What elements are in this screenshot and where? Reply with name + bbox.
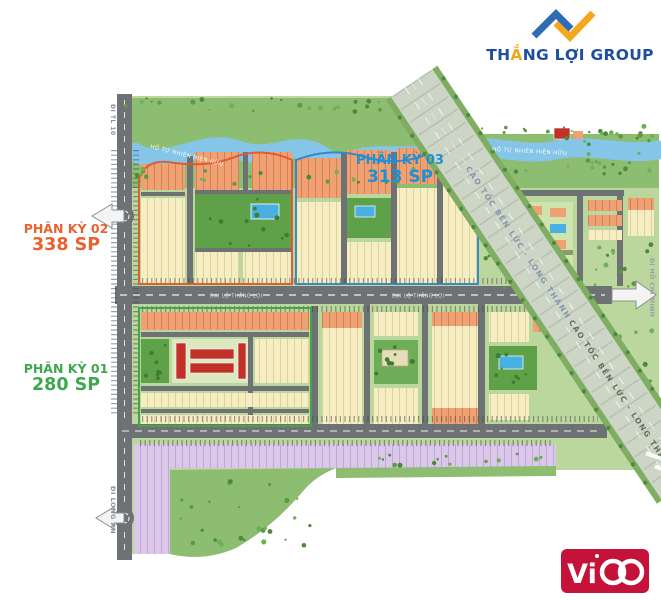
tree-dot (503, 131, 506, 134)
tree-dot (618, 172, 621, 175)
phase-02-title: PHÂN KỲ 02 (24, 221, 109, 236)
tree-dot (484, 256, 488, 260)
tree-dot (284, 233, 289, 238)
tree-dot (390, 361, 394, 365)
tree-dot (307, 106, 311, 110)
tree-dot (200, 178, 203, 181)
tree-dot (275, 215, 280, 220)
tree-dot (280, 99, 282, 101)
tree-dot (594, 283, 597, 286)
bottom-green (170, 466, 556, 557)
thang-loi-logo: THẮNG LỢI GROUP (486, 13, 654, 64)
tree-dot (306, 175, 311, 180)
tree-dot (643, 362, 648, 367)
tree-dot (208, 501, 211, 504)
tree-dot (144, 174, 149, 179)
tree-dot (503, 286, 506, 289)
tree-dot (516, 453, 519, 456)
tree-dot (333, 106, 337, 110)
tree-dot (219, 219, 224, 224)
tree-dot (264, 527, 267, 530)
tree-dot (156, 370, 160, 374)
tree-dot (645, 249, 649, 253)
tree-dot (156, 376, 160, 380)
tree-dot (512, 380, 516, 384)
tree-dot (157, 101, 161, 105)
tree-dot (190, 505, 194, 509)
tree-dot (124, 104, 128, 108)
tree-dot (394, 353, 397, 356)
logo-text-part2: Ắ (510, 43, 522, 64)
tree-dot (603, 165, 606, 168)
thang-loi-logo-mark (534, 13, 593, 37)
tree-dot (145, 97, 148, 100)
tree-dot (392, 463, 397, 468)
tree-dot (261, 227, 265, 231)
tree-dot (354, 100, 358, 104)
tree-dot (649, 242, 654, 247)
tree-dot (352, 177, 356, 181)
tree-dot (208, 109, 210, 111)
tree-dot (603, 131, 608, 136)
exit-south-label: ĐI LONG AN (109, 486, 117, 534)
tree-dot (393, 345, 397, 349)
tree-dot (326, 179, 330, 183)
tree-dot (281, 237, 284, 240)
tree-dot (154, 360, 158, 364)
logo-text-part1: TH (486, 46, 510, 64)
tree-dot (388, 454, 391, 457)
tree-dot (248, 175, 251, 178)
tree-dot (484, 460, 487, 463)
phase2-blocks (141, 152, 292, 284)
tree-dot (398, 463, 403, 468)
tree-dot (261, 539, 266, 544)
tree-dot (571, 130, 573, 132)
tree-dot (200, 97, 205, 102)
phase-03-units: 313 SP (367, 167, 433, 187)
tree-dot (588, 131, 590, 133)
tree-dot (209, 217, 212, 220)
tree-dot (204, 169, 208, 173)
tree-dot (374, 372, 378, 376)
tree-dot (252, 110, 255, 113)
tree-dot (253, 207, 257, 211)
phase-03-label: PHÂN KỲ 03 313 SP (356, 152, 444, 187)
tree-dot (649, 328, 654, 333)
tree-dot (638, 133, 643, 138)
tree-dot (504, 353, 508, 357)
tree-dot (501, 368, 503, 370)
tree-dot (191, 541, 196, 546)
tree-dot (606, 254, 609, 257)
tree-dot (203, 179, 206, 182)
tree-dot (627, 285, 629, 287)
tree-dot (268, 483, 271, 486)
vico-logo-text: Vi (567, 559, 597, 590)
tree-dot (628, 161, 631, 164)
tree-dot (378, 457, 381, 460)
tree-dot (297, 103, 302, 108)
tree-dot (245, 219, 249, 223)
tree-dot (432, 461, 436, 465)
tree-dot (201, 529, 204, 532)
phase-01-label: PHÂN KỲ 01 280 SP (24, 361, 109, 395)
tree-dot (587, 142, 591, 146)
tree-dot (523, 128, 525, 130)
tree-dot (135, 174, 139, 178)
exit-east-label: ĐI HỒ CHÍ MINH (648, 258, 657, 317)
tree-dot (436, 458, 439, 461)
tree-dot (228, 479, 233, 484)
vico-logo: Vi (561, 549, 649, 593)
south-pool (499, 356, 523, 369)
tree-dot (504, 126, 508, 130)
tree-dot (590, 166, 594, 170)
central-park (195, 194, 292, 248)
site-master-plan: CAO TỐC BẾN LỨC - LONG THÀNH CAO TỐC BẾN… (0, 0, 661, 600)
tree-dot (445, 455, 448, 458)
tree-dot (567, 165, 570, 168)
phase3-park (347, 198, 391, 238)
tree-dot (611, 163, 614, 166)
tree-dot (357, 181, 360, 184)
vico-flame-dot-icon (595, 554, 599, 558)
tree-dot (140, 173, 143, 176)
phase-02-label: PHÂN KỲ 02 338 SP (24, 221, 109, 255)
tree-dot (144, 374, 148, 378)
tree-dot (597, 246, 601, 250)
tree-dot (481, 127, 483, 129)
tree-dot (637, 152, 640, 155)
tree-dot (650, 134, 654, 138)
tree-dot (636, 137, 639, 140)
tree-dot (595, 268, 597, 270)
tree-dot (615, 132, 619, 136)
tree-dot (187, 179, 190, 182)
tree-dot (256, 198, 259, 201)
tree-dot (217, 540, 222, 545)
tree-dot (229, 103, 234, 108)
tree-dot (583, 140, 586, 143)
phase-01-units: 280 SP (32, 375, 100, 395)
tree-dot (284, 498, 289, 503)
tree-dot (335, 170, 339, 174)
tree-dot (595, 160, 598, 163)
tree-dot (525, 373, 527, 375)
tree-dot (164, 344, 167, 347)
tree-dot (603, 172, 606, 175)
tree-dot (254, 213, 259, 218)
tree-dot (180, 498, 183, 501)
thang-loi-logo-text: THẮNG LỢI GROUP (486, 43, 654, 64)
tree-dot (382, 458, 384, 460)
tree-dot (139, 180, 141, 182)
tree-dot (618, 134, 623, 139)
tree-dot (619, 270, 623, 274)
tree-dot (238, 506, 240, 508)
tree-dot (378, 349, 382, 353)
tree-dot (524, 169, 527, 172)
tree-dot (622, 267, 626, 271)
tree-dot (293, 516, 296, 519)
tree-dot (496, 353, 501, 358)
tree-dot (368, 99, 371, 102)
logo-text-part3: NG LỢI GROUP (523, 46, 654, 64)
tree-dot (270, 97, 273, 100)
tree-dot (243, 539, 246, 542)
tree-dot (190, 99, 195, 104)
tree-dot (259, 171, 263, 175)
phase-03-title: PHÂN KỲ 03 (356, 152, 444, 168)
tree-dot (410, 359, 415, 364)
tree-dot (232, 182, 236, 186)
tree-dot (268, 529, 273, 534)
tree-dot (647, 168, 651, 172)
tree-dot (597, 161, 601, 165)
tree-dot (514, 169, 518, 173)
tree-dot (213, 538, 217, 542)
tree-dot (546, 130, 550, 134)
tree-dot (141, 167, 146, 172)
tree-dot (302, 543, 307, 548)
tree-dot (497, 458, 501, 462)
tree-dot (149, 351, 153, 355)
tree-dot (229, 242, 232, 245)
tree-dot (296, 498, 298, 500)
tree-dot (365, 105, 369, 109)
tree-dot (565, 136, 570, 141)
tree-dot (603, 263, 608, 268)
tree-dot (611, 249, 615, 253)
tree-dot (239, 536, 244, 541)
tree-dot (248, 244, 250, 246)
tree-dot (150, 101, 152, 103)
tree-dot (179, 517, 182, 520)
tree-dot (641, 124, 646, 129)
tree-dot (337, 106, 340, 109)
exit-north-label: ĐI TL 10 (109, 104, 116, 136)
tree-dot (647, 139, 650, 142)
tree-dot (156, 373, 159, 376)
tree-dot (563, 126, 565, 128)
tree-dot (600, 132, 604, 136)
phase3-pool (355, 206, 375, 217)
tree-dot (623, 166, 628, 171)
tree-dot (586, 158, 591, 163)
tree-dot (494, 373, 498, 377)
tree-dot (517, 377, 520, 380)
phase-01-title: PHÂN KỲ 01 (24, 361, 109, 376)
phase-02-units: 338 SP (32, 235, 100, 255)
tree-dot (140, 100, 144, 104)
tree-dot (285, 539, 287, 541)
tree-dot (609, 130, 614, 135)
tree-dot (308, 524, 311, 527)
tree-dot (539, 456, 542, 459)
tree-dot (256, 526, 261, 531)
tree-dot (591, 161, 594, 164)
tree-dot (318, 105, 323, 110)
tree-dot (534, 457, 539, 462)
tree-dot (448, 463, 451, 466)
tree-dot (378, 101, 380, 103)
tree-dot (353, 109, 358, 114)
master-plan-poster: CAO TỐC BẾN LỨC - LONG THÀNH CAO TỐC BẾN… (0, 0, 661, 600)
tree-dot (378, 108, 382, 112)
tree-dot (634, 330, 638, 334)
tree-dot (587, 152, 591, 156)
